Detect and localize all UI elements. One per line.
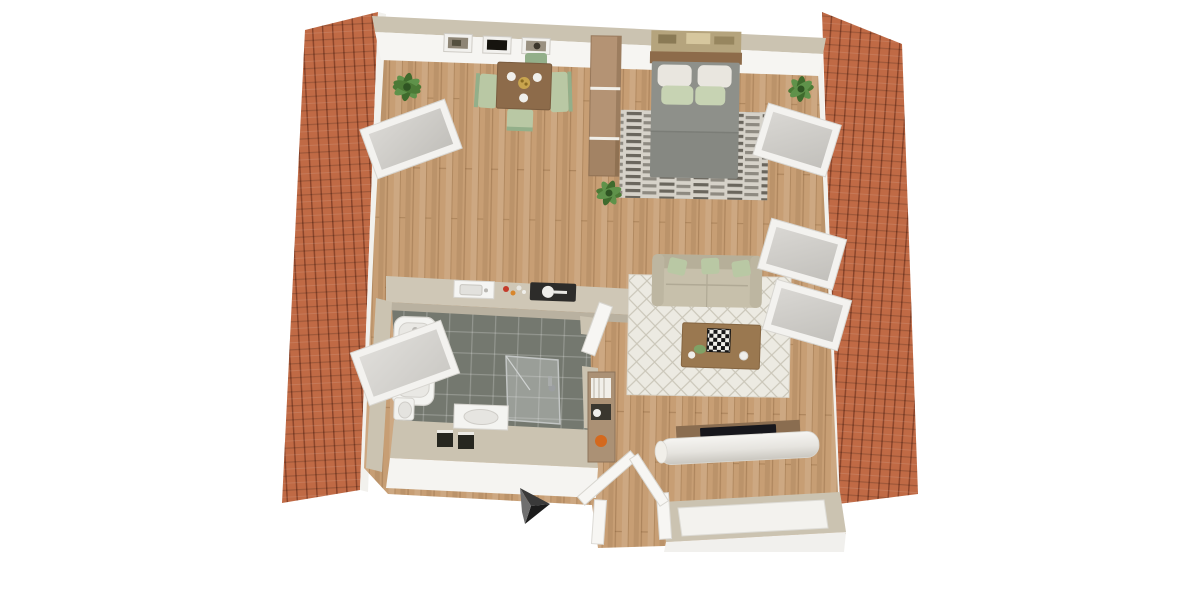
wardrobe	[589, 36, 621, 177]
dining-table	[496, 62, 552, 110]
pillow-white-2	[697, 65, 731, 88]
sofa-cushion-3	[731, 259, 751, 278]
hallway-shelf	[588, 372, 615, 462]
wall-niche-1-top	[437, 430, 453, 433]
kitchen-hob	[530, 282, 577, 302]
picture-frame-1	[444, 34, 473, 53]
sofa	[652, 254, 763, 308]
floor-plan-svg	[0, 0, 1200, 600]
coffee-table	[681, 323, 760, 370]
chessboard	[707, 329, 731, 353]
door-post-left	[591, 500, 606, 545]
sofa-cushion-2	[701, 258, 720, 275]
shelf-paper-roll	[593, 409, 601, 417]
shower	[506, 356, 560, 424]
pillow-white-1	[657, 64, 691, 87]
floor-plan-stage	[0, 0, 1200, 600]
picture-frame-2	[483, 36, 512, 54]
pillow-green-1	[661, 85, 693, 105]
dining-chair-right	[549, 72, 572, 113]
kitchen-sink	[454, 280, 495, 298]
dining-chair-left	[474, 73, 498, 108]
dining-chair-bottom	[507, 109, 534, 132]
picture-frame-3	[522, 38, 551, 55]
bed	[648, 30, 743, 179]
wall-niche-2-top	[458, 432, 474, 435]
pillow-green-2	[695, 86, 725, 106]
coffee-cup-2	[739, 351, 748, 360]
washbasin	[454, 404, 509, 430]
shelf-orange-item	[595, 435, 607, 447]
toilet	[394, 398, 415, 421]
shower-arm	[548, 376, 552, 386]
